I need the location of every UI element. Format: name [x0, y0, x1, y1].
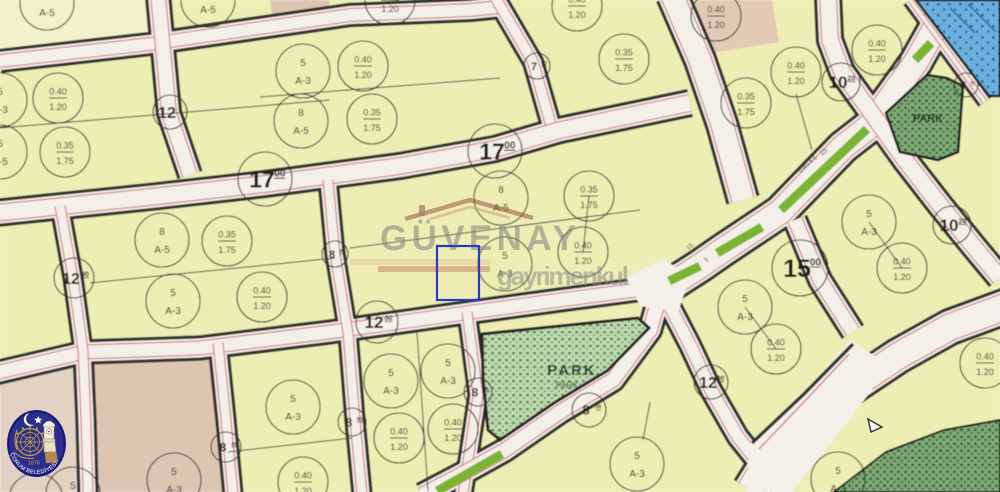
- svg-text:1876: 1876: [28, 461, 40, 467]
- svg-text:gayrimenkul: gayrimenkul: [497, 261, 629, 291]
